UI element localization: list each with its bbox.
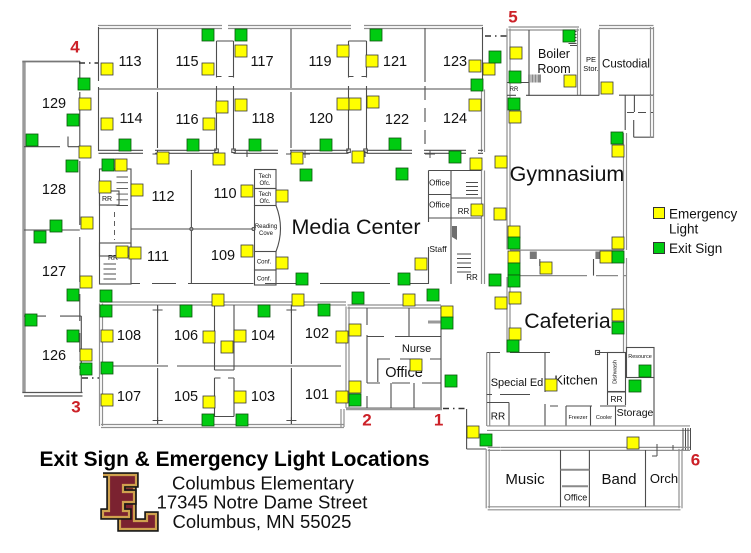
svg-text:124: 124 [443, 111, 467, 127]
svg-text:Room: Room [537, 62, 570, 76]
svg-text:Office: Office [564, 493, 587, 503]
svg-text:105: 105 [174, 389, 198, 405]
svg-text:Boiler: Boiler [538, 47, 570, 61]
svg-text:112: 112 [151, 189, 174, 205]
svg-text:Exit Sign: Exit Sign [669, 241, 722, 256]
svg-text:110: 110 [213, 186, 236, 202]
svg-text:Media Center: Media Center [291, 215, 420, 239]
svg-text:Music: Music [505, 471, 545, 488]
svg-text:122: 122 [385, 112, 409, 128]
svg-text:RR: RR [610, 394, 622, 404]
svg-text:Tech: Tech [259, 174, 272, 180]
svg-text:RR: RR [458, 207, 470, 216]
svg-text:3: 3 [71, 398, 80, 417]
svg-text:117: 117 [250, 54, 273, 70]
svg-text:17345 Notre Dame Street: 17345 Notre Dame Street [157, 492, 368, 513]
svg-text:129: 129 [42, 96, 66, 112]
svg-text:Office: Office [429, 201, 450, 210]
svg-text:Cafeteria: Cafeteria [524, 309, 611, 333]
svg-text:Conf.: Conf. [257, 260, 272, 266]
svg-text:RR: RR [510, 87, 519, 93]
svg-text:Storage: Storage [617, 407, 654, 419]
svg-text:Exit Sign & Emergency Light Lo: Exit Sign & Emergency Light Locations [40, 448, 430, 471]
svg-text:Columbus, MN 55025: Columbus, MN 55025 [173, 511, 352, 532]
svg-text:Dishwash: Dishwash [613, 360, 619, 384]
svg-text:Conf.: Conf. [257, 277, 272, 283]
svg-text:RR: RR [491, 412, 505, 423]
svg-text:Reading: Reading [255, 224, 277, 230]
svg-text:Custodial: Custodial [602, 59, 650, 71]
svg-text:Special Ed: Special Ed [491, 377, 544, 389]
svg-text:Kitchen: Kitchen [554, 373, 597, 388]
svg-text:116: 116 [175, 112, 198, 128]
svg-text:5: 5 [508, 8, 517, 27]
svg-text:114: 114 [119, 111, 142, 127]
svg-text:113: 113 [118, 54, 141, 70]
svg-text:127: 127 [42, 264, 66, 280]
svg-text:Cove: Cove [259, 231, 274, 237]
svg-text:Columbus Elementary: Columbus Elementary [172, 473, 355, 494]
svg-text:119: 119 [308, 54, 331, 70]
svg-text:2: 2 [362, 411, 371, 430]
svg-text:126: 126 [42, 348, 66, 364]
svg-text:107: 107 [117, 389, 141, 405]
svg-text:102: 102 [305, 326, 329, 342]
svg-text:Tech: Tech [259, 192, 272, 198]
svg-text:115: 115 [175, 54, 198, 70]
svg-text:6: 6 [691, 451, 700, 470]
svg-text:Cooler: Cooler [596, 415, 612, 421]
svg-text:Resource: Resource [628, 354, 652, 360]
svg-text:Orch: Orch [650, 471, 678, 486]
svg-text:Light: Light [669, 222, 699, 237]
svg-text:Stor.: Stor. [583, 64, 598, 73]
svg-text:4: 4 [70, 38, 80, 57]
svg-text:Ofc.: Ofc. [259, 181, 270, 187]
svg-text:RR: RR [466, 273, 478, 282]
svg-text:Ofc.: Ofc. [259, 199, 270, 205]
svg-text:PE: PE [586, 55, 596, 64]
svg-text:Freezer: Freezer [569, 415, 588, 421]
svg-text:Nurse: Nurse [402, 343, 431, 355]
svg-text:108: 108 [117, 328, 141, 344]
svg-text:118: 118 [251, 111, 274, 127]
svg-text:RR: RR [102, 196, 112, 203]
svg-text:Office: Office [429, 179, 450, 188]
svg-text:123: 123 [443, 54, 467, 70]
svg-text:121: 121 [383, 54, 407, 70]
svg-text:128: 128 [42, 182, 66, 198]
svg-text:103: 103 [251, 389, 275, 405]
svg-text:104: 104 [251, 328, 275, 344]
svg-text:Staff: Staff [429, 244, 447, 254]
svg-text:Band: Band [601, 471, 636, 488]
svg-text:120: 120 [309, 111, 333, 127]
svg-text:1: 1 [434, 411, 443, 430]
svg-text:109: 109 [211, 248, 235, 264]
svg-text:101: 101 [305, 387, 329, 403]
svg-text:Emergency: Emergency [669, 207, 738, 222]
svg-text:Gymnasium: Gymnasium [510, 162, 625, 186]
svg-text:106: 106 [174, 328, 198, 344]
svg-text:111: 111 [147, 249, 169, 265]
